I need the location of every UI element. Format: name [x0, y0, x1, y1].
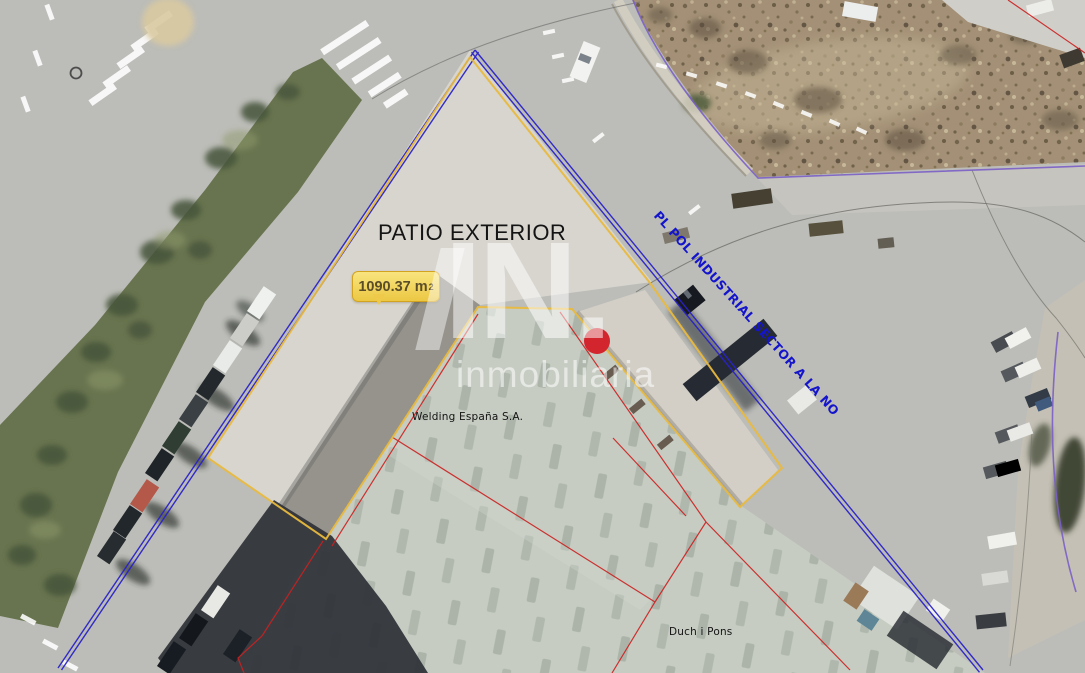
area-value: 1090.37 m [358, 279, 427, 295]
area-measurement-bubble[interactable]: 1090.37 m2 [352, 271, 440, 302]
map-viewport[interactable]: PATIO EXTERIOR 1090.37 m2 PL POL INDUSTR… [0, 0, 1085, 673]
watermark-brand: inmobiliaria [456, 354, 655, 396]
company-label-duch: Duch i Pons [669, 626, 732, 638]
watermark-logo: IN. [444, 222, 608, 360]
company-label-welding: Welding España S.A. [412, 411, 523, 423]
